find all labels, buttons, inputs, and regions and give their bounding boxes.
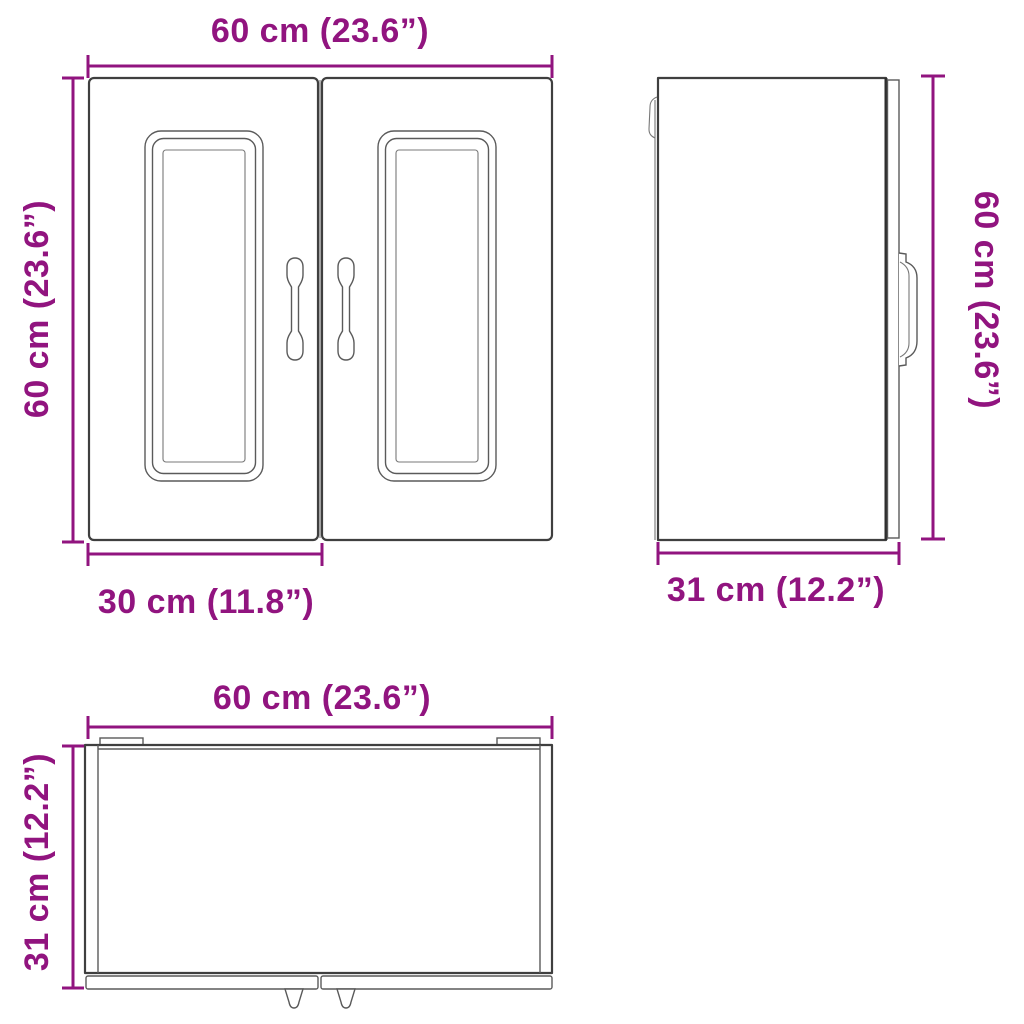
top-width-label: 60 cm (23.6”) [172,678,472,718]
front-view [62,55,552,566]
top-right-door-front [321,976,552,989]
front-door-width-dimension [88,543,322,566]
side-height-dimension [921,76,945,539]
side-view [649,76,945,565]
side-door-handle [899,253,917,366]
top-right-door-handle [337,989,355,1008]
top-left-door-front [86,976,318,989]
front-width-dimension [88,55,552,78]
top-width-dimension [88,716,552,739]
front-right-door-panel [378,131,496,481]
side-mount-bracket [649,97,657,138]
front-door-width-label: 30 cm (11.8”) [56,582,356,622]
side-height-label: 60 cm (23.6”) [966,150,1006,450]
front-width-label: 60 cm (23.6”) [170,11,470,51]
front-height-dimension [62,78,84,542]
top-depth-label: 31 cm (12.2”) [17,712,57,1012]
top-left-door-handle [285,989,303,1008]
side-depth-label: 31 cm (12.2”) [626,570,926,610]
dimension-diagram: 60 cm (23.6”) 60 cm (23.6”) 30 cm (11.8”… [0,0,1024,1024]
top-depth-dimension [62,746,84,988]
top-body [85,745,552,973]
side-door-face [888,80,900,538]
front-left-door-panel [145,131,263,481]
side-depth-dimension [658,542,899,565]
cabinet-line-art [0,0,1024,1024]
front-height-label: 60 cm (23.6”) [17,159,57,459]
side-body [658,78,886,540]
top-view [62,716,552,1008]
